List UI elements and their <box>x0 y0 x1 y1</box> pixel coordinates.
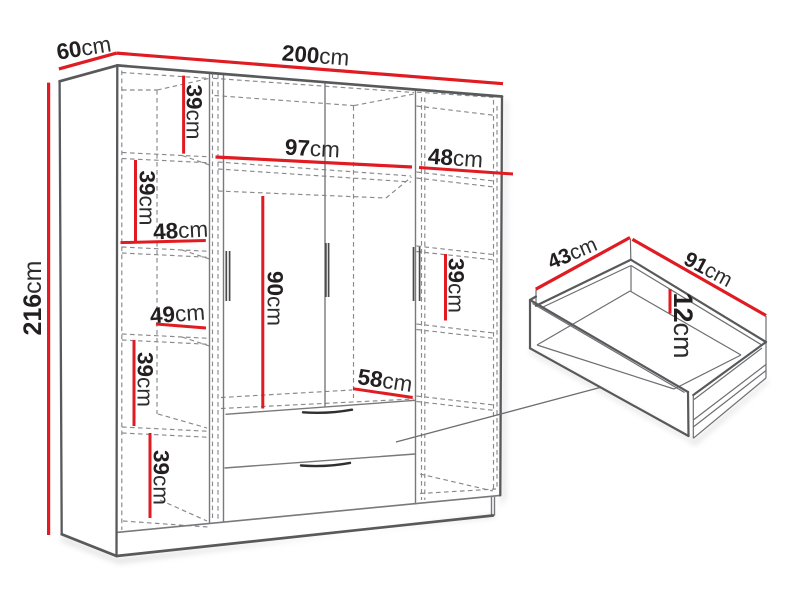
svg-text:39cm: 39cm <box>444 258 469 313</box>
svg-text:39cm: 39cm <box>182 85 207 140</box>
svg-text:12cm: 12cm <box>668 293 698 359</box>
svg-text:216cm: 216cm <box>19 260 47 335</box>
svg-text:48cm: 48cm <box>152 217 208 245</box>
svg-text:48cm: 48cm <box>427 144 484 173</box>
svg-text:97cm: 97cm <box>284 135 340 163</box>
svg-text:49cm: 49cm <box>149 300 206 329</box>
svg-text:200cm: 200cm <box>281 40 350 70</box>
svg-text:39cm: 39cm <box>133 352 158 407</box>
svg-text:90cm: 90cm <box>263 271 288 326</box>
svg-text:39cm: 39cm <box>149 450 174 505</box>
svg-text:39cm: 39cm <box>135 171 160 226</box>
